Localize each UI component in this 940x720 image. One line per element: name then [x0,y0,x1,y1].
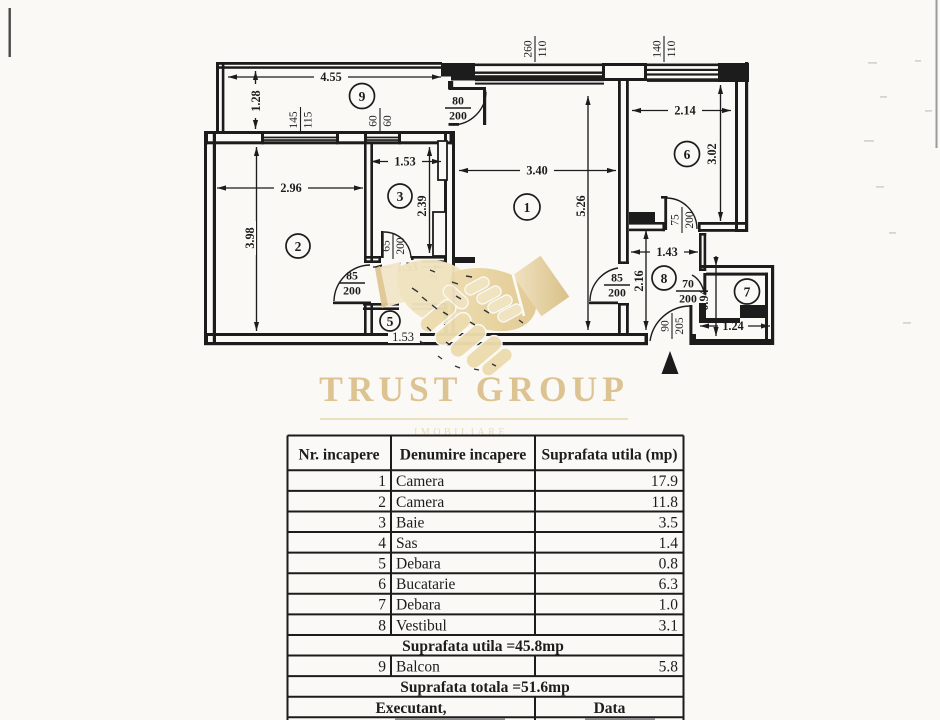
svg-text:6.3: 6.3 [659,576,679,593]
svg-text:60: 60 [382,115,394,127]
svg-text:4.55: 4.55 [320,70,341,84]
svg-text:2.39: 2.39 [415,195,429,216]
svg-text:2: 2 [378,494,386,511]
svg-text:3.5: 3.5 [659,514,679,531]
svg-text:140: 140 [652,40,664,58]
svg-text:Suprafata totala =51.6mp: Suprafata totala =51.6mp [400,679,569,696]
svg-text:11.8: 11.8 [651,494,678,511]
svg-text:5: 5 [378,556,386,573]
svg-text:1: 1 [524,200,531,215]
svg-text:110: 110 [666,40,678,57]
svg-text:Executant,: Executant, [375,700,446,717]
svg-text:8: 8 [378,617,386,634]
svg-text:Vestibul: Vestibul [396,617,447,634]
svg-text:7: 7 [744,284,751,299]
svg-text:6: 6 [378,576,386,593]
svg-text:Sas: Sas [396,535,418,552]
svg-text:3: 3 [378,514,386,531]
svg-text:0.8: 0.8 [659,556,679,573]
svg-text:145: 145 [288,111,300,129]
svg-text:17.9: 17.9 [651,473,678,490]
svg-text:205: 205 [674,317,686,335]
svg-text:200: 200 [395,237,407,255]
svg-text:2.14: 2.14 [674,104,695,118]
svg-text:Suprafata utila =45.8mp: Suprafata utila =45.8mp [402,638,564,655]
svg-text:1.28: 1.28 [249,90,263,111]
svg-text:4: 4 [378,535,386,552]
svg-text:1.4: 1.4 [659,535,679,552]
svg-text:1.53: 1.53 [392,330,414,344]
svg-text:9: 9 [378,658,386,675]
svg-text:1.0: 1.0 [659,597,679,614]
svg-text:Balcon: Balcon [396,658,440,675]
svg-text:1: 1 [378,473,386,490]
svg-text:5.8: 5.8 [659,658,679,675]
svg-text:1.53: 1.53 [394,155,415,169]
svg-text:3.98: 3.98 [243,227,257,248]
svg-text:2: 2 [295,239,302,254]
svg-text:2.96: 2.96 [280,181,301,195]
svg-text:Suprafata utila (mp): Suprafata utila (mp) [541,447,677,464]
svg-text:7: 7 [378,597,386,614]
svg-text:200: 200 [449,109,467,123]
svg-text:Baie: Baie [396,514,425,531]
svg-text:Denumire incapere: Denumire incapere [400,447,527,464]
svg-text:5.26: 5.26 [574,195,588,216]
svg-text:2.16: 2.16 [632,270,646,291]
svg-text:Bucatarie: Bucatarie [396,576,456,593]
svg-text:Data: Data [594,700,626,717]
svg-text:70: 70 [682,277,694,291]
svg-text:Camera: Camera [396,473,444,490]
svg-text:3.1: 3.1 [659,617,678,634]
svg-text:5: 5 [387,314,394,329]
svg-text:200: 200 [679,292,697,306]
svg-text:85: 85 [611,271,623,285]
svg-text:90: 90 [660,320,672,332]
svg-text:Debara: Debara [396,597,441,614]
svg-text:65: 65 [381,240,393,252]
svg-text:110: 110 [537,40,549,57]
svg-text:Nr. incapere: Nr. incapere [299,447,380,464]
svg-text:85: 85 [346,269,358,283]
svg-text:80: 80 [452,94,464,108]
svg-text:8: 8 [661,271,668,286]
svg-text:115: 115 [303,111,315,128]
svg-text:75: 75 [670,214,682,226]
svg-text:200: 200 [343,284,361,298]
svg-text:9: 9 [359,89,366,104]
svg-text:1.43: 1.43 [656,245,677,259]
svg-text:260: 260 [523,40,535,58]
svg-text:3.40: 3.40 [526,164,547,178]
svg-text:200: 200 [608,286,626,300]
svg-text:60: 60 [368,115,380,127]
svg-text:Debara: Debara [396,556,441,573]
svg-text:200: 200 [684,211,696,229]
svg-text:TRUST GROUP: TRUST GROUP [319,369,629,409]
svg-text:3: 3 [397,189,404,204]
svg-text:6: 6 [684,147,691,162]
svg-text:0.94: 0.94 [697,289,711,310]
svg-text:3.02: 3.02 [705,143,719,164]
svg-text:Camera: Camera [396,494,444,511]
